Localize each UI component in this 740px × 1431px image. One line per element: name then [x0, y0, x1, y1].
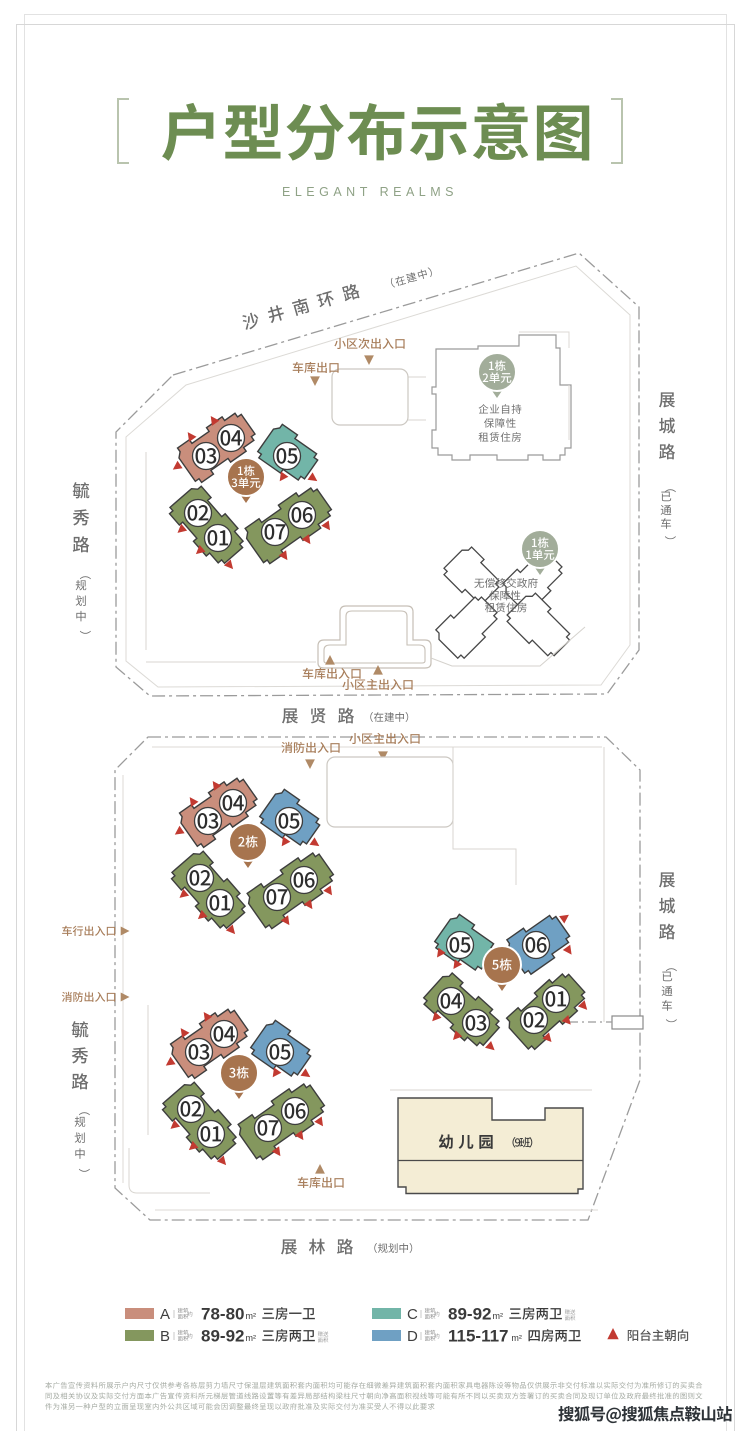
svg-text:D: D [407, 1328, 418, 1345]
svg-text:89-92: 89-92 [448, 1305, 491, 1324]
svg-text:78-80: 78-80 [201, 1305, 244, 1324]
svg-text:m²: m² [246, 1333, 257, 1343]
svg-text:m²: m² [246, 1311, 257, 1321]
svg-text:m²: m² [493, 1311, 504, 1321]
svg-text:A: A [160, 1306, 170, 1323]
svg-text:C: C [407, 1306, 418, 1323]
svg-text:ELEGANT REALMS: ELEGANT REALMS [282, 185, 458, 199]
svg-text:m²: m² [511, 1333, 522, 1343]
svg-text:115-117: 115-117 [448, 1327, 509, 1346]
svg-text:89-92: 89-92 [201, 1327, 244, 1346]
svg-text:B: B [160, 1328, 170, 1345]
